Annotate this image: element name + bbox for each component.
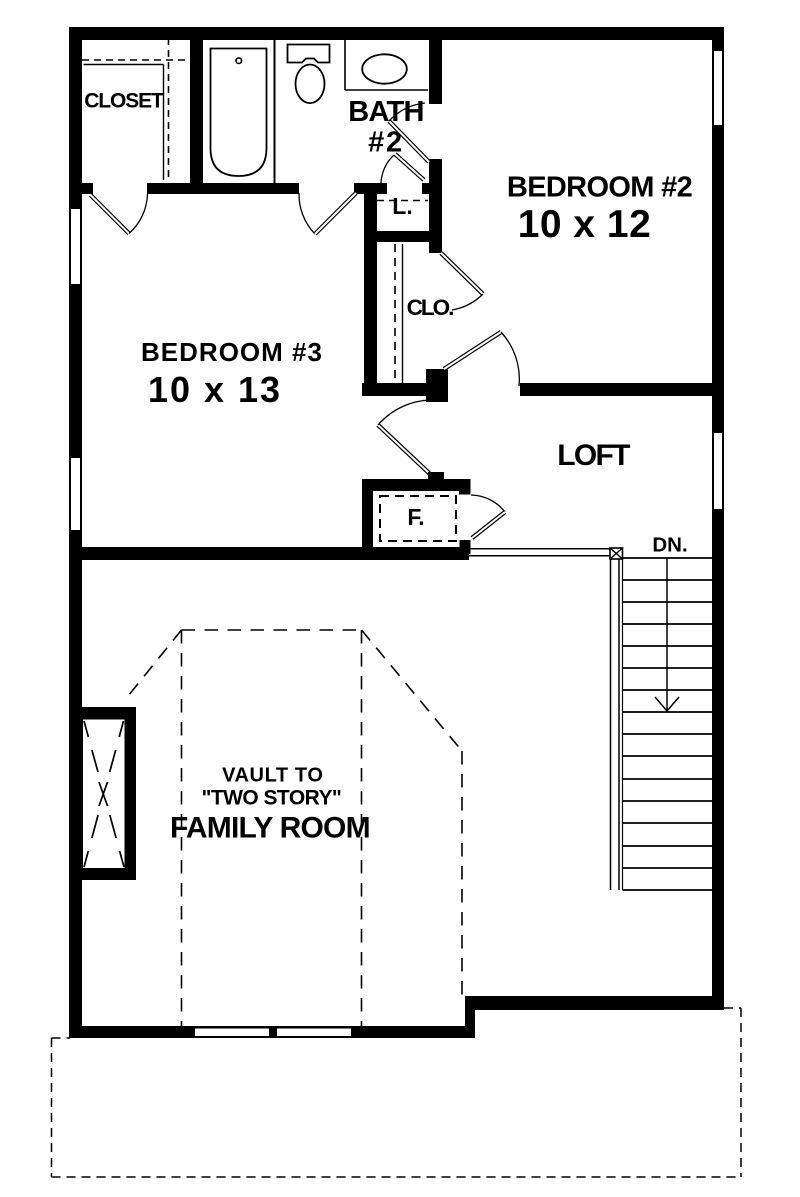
svg-text:CLO.: CLO. [407, 295, 453, 320]
svg-text:F.: F. [407, 504, 424, 530]
svg-text:10 x 12: 10 x 12 [518, 203, 652, 246]
svg-text:"TWO STORY": "TWO STORY" [201, 787, 341, 810]
svg-text:BEDROOM #3: BEDROOM #3 [141, 337, 323, 367]
svg-text:CLOSET: CLOSET [84, 90, 164, 113]
svg-text:FAMILY ROOM: FAMILY ROOM [170, 812, 370, 845]
svg-text:10 x 13: 10 x 13 [148, 369, 282, 410]
svg-text:DN.: DN. [652, 534, 687, 557]
svg-text:BEDROOM #2: BEDROOM #2 [507, 172, 692, 204]
svg-text:L.: L. [392, 193, 412, 219]
svg-text:LOFT: LOFT [557, 439, 630, 472]
svg-text:BATH: BATH [348, 96, 424, 128]
svg-text:VAULT TO: VAULT TO [222, 765, 323, 787]
